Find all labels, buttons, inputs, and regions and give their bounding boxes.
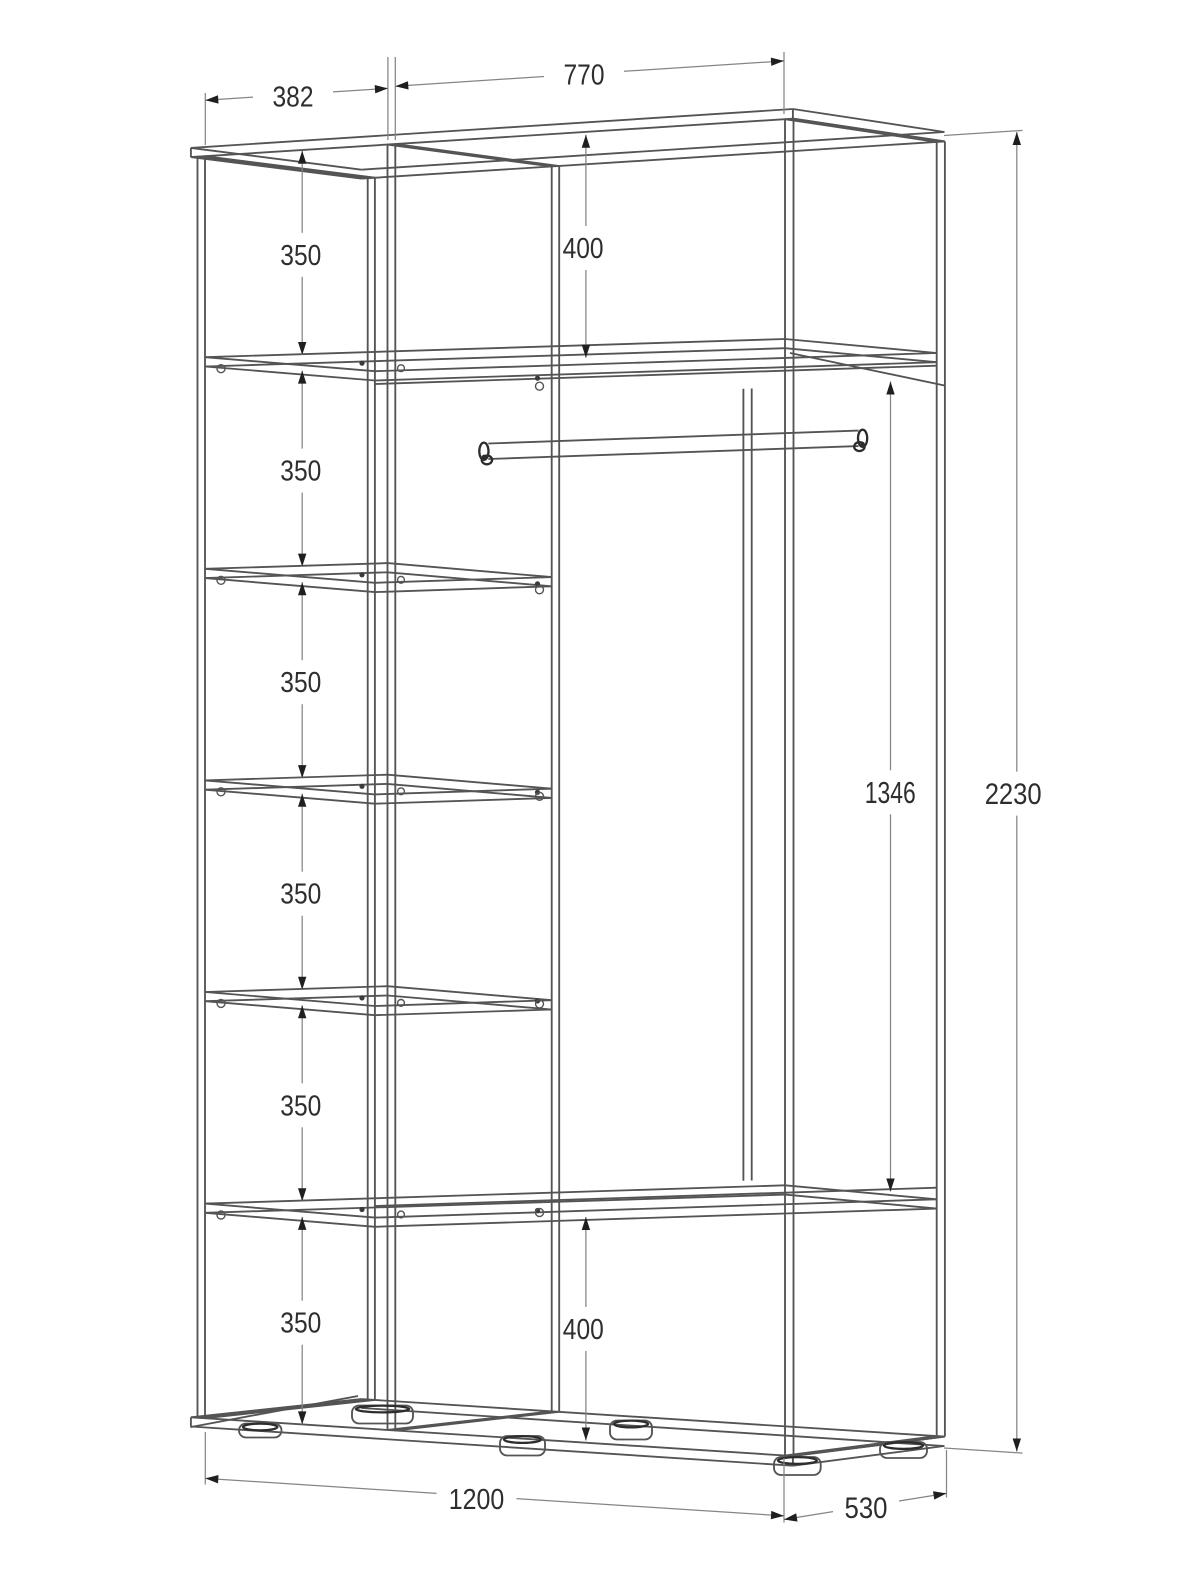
svg-text:350: 350 <box>280 1308 321 1340</box>
svg-text:350: 350 <box>280 667 321 699</box>
svg-text:382: 382 <box>273 82 314 114</box>
svg-text:2230: 2230 <box>985 778 1042 811</box>
svg-text:400: 400 <box>563 233 604 265</box>
svg-text:1346: 1346 <box>865 775 916 810</box>
svg-text:350: 350 <box>280 240 321 272</box>
svg-text:400: 400 <box>563 1314 604 1346</box>
svg-text:350: 350 <box>280 1090 321 1122</box>
svg-text:350: 350 <box>280 456 321 488</box>
svg-text:530: 530 <box>845 1492 888 1525</box>
svg-text:770: 770 <box>564 60 605 92</box>
svg-text:1200: 1200 <box>449 1484 505 1516</box>
svg-text:350: 350 <box>280 879 321 911</box>
